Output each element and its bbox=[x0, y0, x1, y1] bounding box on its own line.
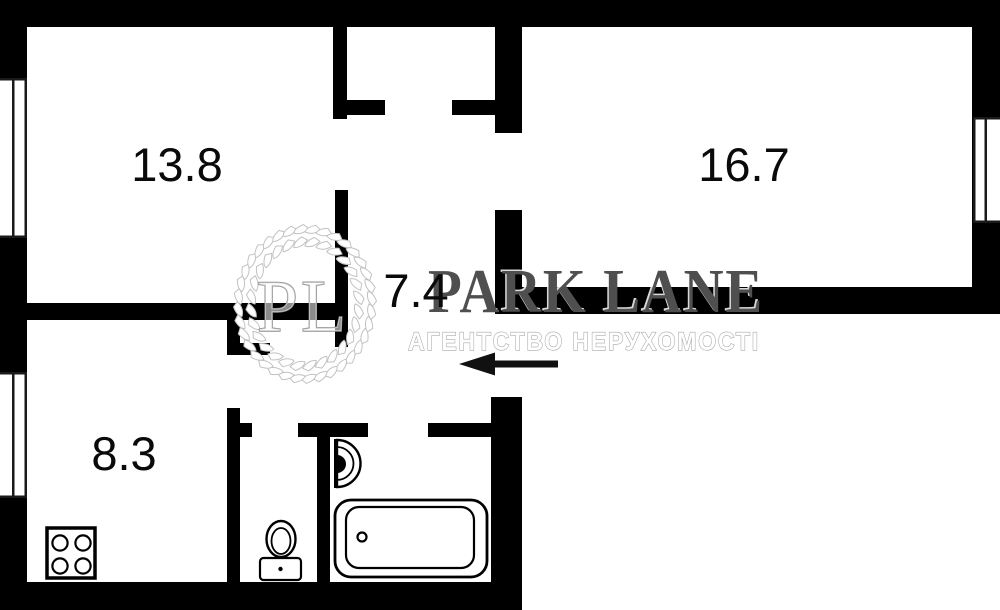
wall-bottom bbox=[0, 582, 522, 610]
wall-kitchen-right-lower bbox=[227, 408, 240, 582]
wall-closet-left bbox=[333, 27, 347, 119]
bathtub-icon bbox=[335, 500, 487, 577]
wall-closet-right bbox=[495, 27, 522, 133]
room-label-13-8: 13.8 bbox=[131, 138, 222, 191]
wall-wc-door-stub-left bbox=[240, 423, 252, 437]
stove-icon bbox=[47, 528, 95, 578]
room-label-16-7: 16.7 bbox=[698, 138, 789, 191]
room-label-8-3: 8.3 bbox=[91, 427, 156, 480]
brand-watermark: PARK LANE bbox=[428, 258, 764, 326]
window-kitchen-icon bbox=[0, 372, 27, 498]
wall-top bbox=[0, 0, 1000, 27]
wall-entry-side bbox=[491, 397, 522, 610]
wall-hall-top-right-stub bbox=[452, 100, 497, 115]
floor-plan: PL PARK LANE PARK LANE АГЕНТСТВО НЕРУХОМ… bbox=[0, 0, 1000, 610]
window-room-right-icon bbox=[973, 117, 1000, 223]
room-label-7-4: 7.4 bbox=[383, 264, 448, 317]
watermark-initials: PL bbox=[257, 266, 349, 348]
window-room-top-left-icon bbox=[0, 78, 27, 238]
wall-hall-top-left-stub bbox=[347, 100, 385, 115]
wall-wc-bath-divider bbox=[317, 437, 330, 582]
agency-tagline-watermark: АГЕНТСТВО НЕРУХОМОСТІ bbox=[408, 328, 760, 356]
wall-wc-top bbox=[298, 423, 368, 437]
